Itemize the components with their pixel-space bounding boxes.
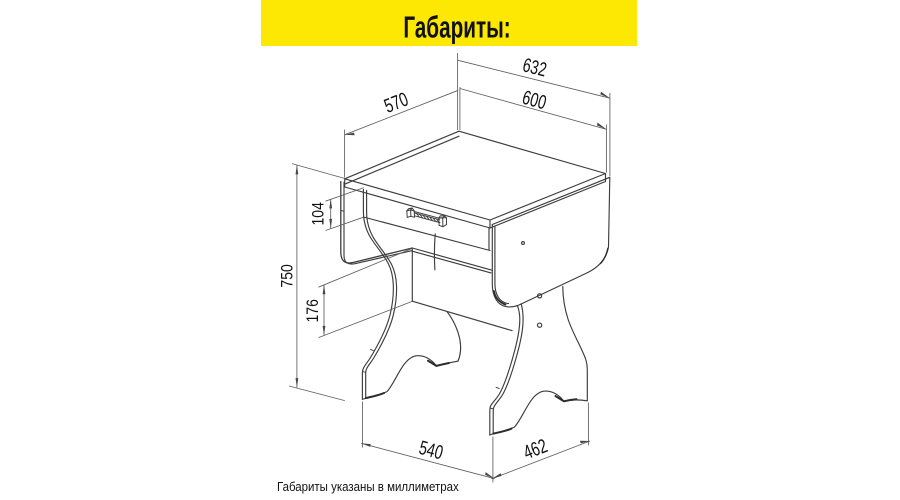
svg-text:176: 176 [304,299,322,322]
svg-text:Габариты:: Габариты: [403,9,510,44]
svg-text:750: 750 [278,264,296,287]
svg-text:104: 104 [310,202,328,226]
svg-text:462: 462 [520,434,550,464]
svg-text:Габариты указаны в миллиметрах: Габариты указаны в миллиметрах [277,479,460,494]
svg-text:570: 570 [381,87,412,117]
svg-text:600: 600 [520,85,549,113]
svg-text:540: 540 [417,436,446,464]
